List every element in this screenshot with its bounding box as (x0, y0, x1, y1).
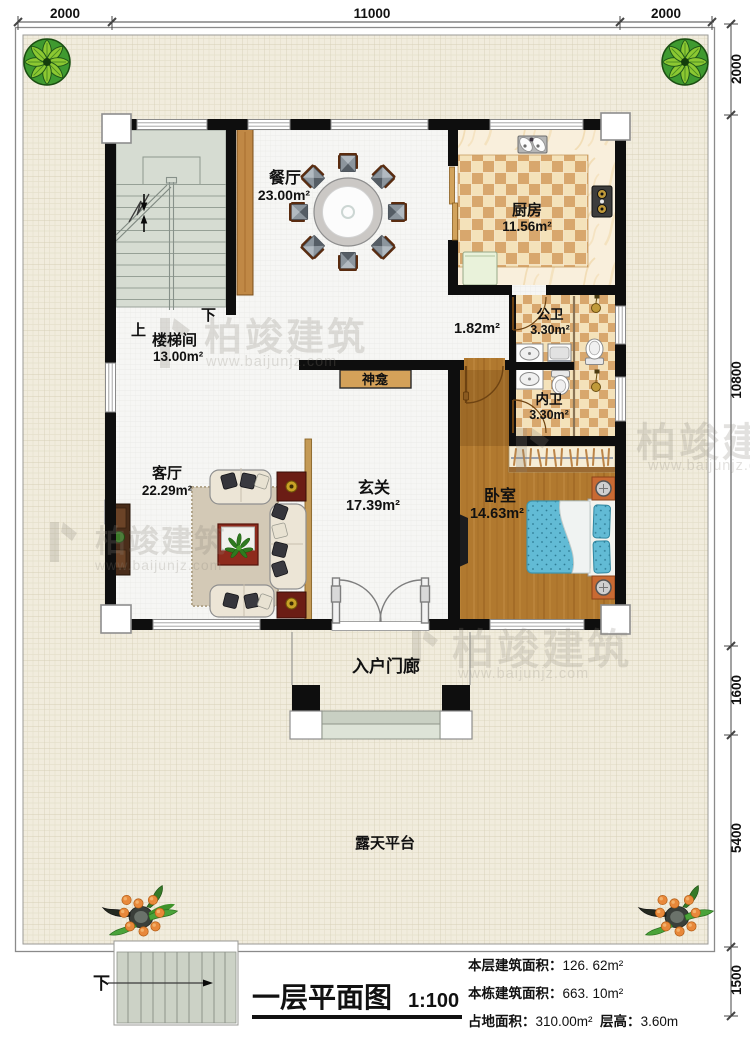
svg-text:1600: 1600 (729, 675, 744, 705)
svg-text:上: 上 (131, 322, 146, 339)
svg-text:玄关: 玄关 (358, 478, 390, 497)
svg-text:17.39m²: 17.39m² (346, 498, 400, 514)
svg-text:www.baijunjz.com: www.baijunjz.com (647, 458, 750, 474)
svg-text:10800: 10800 (729, 361, 744, 399)
svg-text:餐厅: 餐厅 (268, 168, 301, 187)
svg-text:23.00m²: 23.00m² (258, 187, 310, 203)
svg-text:www.baijunjz.com: www.baijunjz.com (94, 557, 222, 573)
svg-text:神龛: 神龛 (362, 372, 389, 387)
svg-text:1500: 1500 (729, 965, 744, 995)
svg-text:入户门廊: 入户门廊 (352, 656, 420, 676)
svg-text:14.63m²: 14.63m² (470, 506, 524, 522)
svg-text:www.baijunjz.com: www.baijunjz.com (205, 354, 337, 370)
svg-text:www.baijunjz.com: www.baijunjz.com (457, 666, 589, 682)
svg-text:3.30m²: 3.30m² (529, 408, 569, 422)
svg-text:厨房: 厨房 (512, 201, 542, 219)
svg-text:11.56m²: 11.56m² (502, 219, 552, 234)
svg-text:一层平面图: 一层平面图 (252, 982, 392, 1013)
svg-text:柏竣建筑: 柏竣建筑 (204, 317, 368, 359)
svg-text:柏竣建筑: 柏竣建筑 (95, 524, 227, 559)
svg-text:公卫: 公卫 (537, 307, 565, 322)
svg-text:内卫: 内卫 (536, 391, 564, 407)
svg-text:5400: 5400 (729, 823, 744, 853)
svg-text:1.82m²: 1.82m² (454, 321, 500, 337)
svg-text:客厅: 客厅 (151, 464, 182, 482)
svg-text:11000: 11000 (354, 6, 391, 21)
svg-text:本层建筑面积：126. 62m²: 本层建筑面积：126. 62m² (468, 957, 624, 973)
svg-text:占地面积：310.00m² 层高：3.60m: 占地面积：310.00m² 层高：3.60m (468, 1013, 678, 1029)
svg-text:楼梯间: 楼梯间 (152, 331, 197, 349)
svg-text:本栋建筑面积：663. 10m²: 本栋建筑面积：663. 10m² (468, 985, 624, 1001)
svg-text:2000: 2000 (50, 6, 80, 21)
svg-text:1:100: 1:100 (408, 990, 459, 1012)
svg-text:2000: 2000 (651, 6, 681, 21)
svg-text:露天平台: 露天平台 (355, 834, 415, 852)
svg-text:3.30m²: 3.30m² (530, 323, 570, 337)
svg-text:2000: 2000 (729, 54, 744, 84)
svg-text:22.29m²: 22.29m² (142, 483, 193, 498)
svg-text:下: 下 (201, 307, 216, 324)
svg-text:下: 下 (93, 974, 110, 993)
svg-text:卧室: 卧室 (484, 486, 516, 505)
svg-text:13.00m²: 13.00m² (153, 349, 204, 364)
